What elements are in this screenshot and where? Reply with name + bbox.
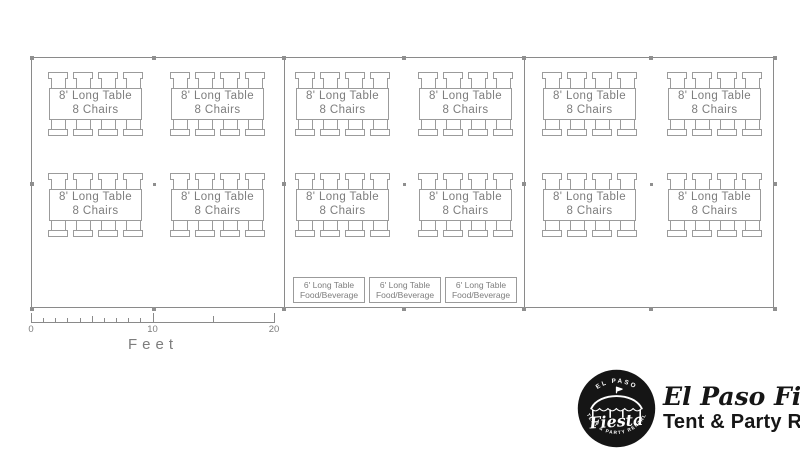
chair-back xyxy=(73,230,93,237)
pole-marker xyxy=(773,56,777,60)
chair xyxy=(320,219,340,237)
table-label-line2: 8 Chairs xyxy=(194,205,240,219)
chair xyxy=(295,219,315,237)
guest-table: 8' Long Table 8 Chairs xyxy=(170,72,265,136)
chair xyxy=(123,118,143,136)
chair-back xyxy=(320,230,340,237)
chair-back xyxy=(592,129,612,136)
chairs-row-bottom xyxy=(295,219,390,237)
pole-marker xyxy=(402,307,406,311)
chair xyxy=(98,118,118,136)
pole-marker xyxy=(773,182,777,186)
food-table-line2: Food/Beverage xyxy=(376,290,434,300)
chairs-row-bottom xyxy=(418,118,513,136)
table-label-line2: 8 Chairs xyxy=(72,104,118,118)
chair-back xyxy=(195,230,215,237)
chair-back xyxy=(73,129,93,136)
chair-back xyxy=(468,129,488,136)
pole-marker xyxy=(649,56,653,60)
table-label-line1: 8' Long Table xyxy=(429,191,502,205)
chair-back xyxy=(567,230,587,237)
chairs-row-bottom xyxy=(295,118,390,136)
chair xyxy=(418,219,438,237)
ruler-tick xyxy=(80,318,81,322)
chair-back xyxy=(617,230,637,237)
chairs-row-bottom xyxy=(170,118,265,136)
chair xyxy=(98,219,118,237)
table-label-line1: 8' Long Table xyxy=(553,90,626,104)
ruler-tick xyxy=(67,318,68,322)
chair xyxy=(418,118,438,136)
chair-back xyxy=(220,129,240,136)
chair-back xyxy=(98,230,118,237)
ruler-tick xyxy=(104,318,105,322)
chair-back xyxy=(345,129,365,136)
ruler-tick xyxy=(140,318,141,322)
guest-table-rect: 8' Long Table 8 Chairs xyxy=(419,189,512,221)
chair xyxy=(742,219,762,237)
floor-plan-canvas: 8' Long Table 8 Chairs 8' Long Table 8 C… xyxy=(0,0,800,450)
chair xyxy=(493,219,513,237)
pole-marker xyxy=(402,56,406,60)
chair xyxy=(617,118,637,136)
ruler-tick xyxy=(55,318,56,322)
chair-back xyxy=(245,129,265,136)
table-label-line2: 8 Chairs xyxy=(319,205,365,219)
guest-table: 8' Long Table 8 Chairs xyxy=(295,72,390,136)
guest-table-rect: 8' Long Table 8 Chairs xyxy=(171,88,264,120)
pole-marker xyxy=(30,182,34,186)
table-label-line1: 8' Long Table xyxy=(678,90,751,104)
chair xyxy=(667,118,687,136)
ruler-tick-label: 10 xyxy=(147,324,158,335)
chair xyxy=(692,118,712,136)
table-label-line2: 8 Chairs xyxy=(566,205,612,219)
chair xyxy=(220,118,240,136)
ruler-tick-label: 20 xyxy=(269,324,280,335)
table-label-line1: 8' Long Table xyxy=(59,90,132,104)
chair-back xyxy=(320,129,340,136)
chair-back xyxy=(667,230,687,237)
guest-table-rect: 8' Long Table 8 Chairs xyxy=(543,189,636,221)
chair xyxy=(170,219,190,237)
pole-marker xyxy=(152,56,156,60)
food-table-line1: 6' Long Table xyxy=(456,280,506,290)
guest-table: 8' Long Table 8 Chairs xyxy=(542,72,637,136)
chair-back xyxy=(170,230,190,237)
guest-table: 8' Long Table 8 Chairs xyxy=(418,72,513,136)
ruler-tick-label: 0 xyxy=(28,324,33,335)
chair-back xyxy=(542,230,562,237)
chair xyxy=(123,219,143,237)
guest-table-rect: 8' Long Table 8 Chairs xyxy=(49,189,142,221)
chair xyxy=(443,118,463,136)
chair xyxy=(493,118,513,136)
table-label-line2: 8 Chairs xyxy=(691,104,737,118)
chair xyxy=(195,219,215,237)
pole-marker xyxy=(522,56,526,60)
food-table-line1: 6' Long Table xyxy=(380,280,430,290)
chair xyxy=(592,118,612,136)
chair xyxy=(370,118,390,136)
pole-marker xyxy=(650,183,653,186)
chair-back xyxy=(123,129,143,136)
chair xyxy=(592,219,612,237)
chair xyxy=(717,118,737,136)
table-label-line2: 8 Chairs xyxy=(442,104,488,118)
guest-table: 8' Long Table 8 Chairs xyxy=(667,173,762,237)
chair-back xyxy=(443,129,463,136)
chair-back xyxy=(123,230,143,237)
chair-back xyxy=(48,230,68,237)
pole-marker xyxy=(30,56,34,60)
chair-back xyxy=(493,230,513,237)
table-label-line1: 8' Long Table xyxy=(59,191,132,205)
pole-marker xyxy=(282,307,286,311)
food-table-line2: Food/Beverage xyxy=(452,290,510,300)
chair-back xyxy=(418,230,438,237)
chairs-row-bottom xyxy=(542,118,637,136)
chair xyxy=(195,118,215,136)
chair-back xyxy=(345,230,365,237)
chair xyxy=(370,219,390,237)
chairs-row-bottom xyxy=(48,118,143,136)
chair-back xyxy=(245,230,265,237)
tent-outline: 8' Long Table 8 Chairs 8' Long Table 8 C… xyxy=(31,57,774,308)
chair-back xyxy=(370,230,390,237)
ruler-tick xyxy=(274,313,275,322)
food-table-line2: Food/Beverage xyxy=(300,290,358,300)
chair-back xyxy=(567,129,587,136)
logo-wordmark: El Paso Fiesta Tent & Party Rental xyxy=(663,384,800,432)
chair xyxy=(345,219,365,237)
guest-table: 8' Long Table 8 Chairs xyxy=(48,173,143,237)
table-label-line1: 8' Long Table xyxy=(181,90,254,104)
chair xyxy=(468,118,488,136)
chair-back xyxy=(717,230,737,237)
chairs-row-bottom xyxy=(667,118,762,136)
chair xyxy=(170,118,190,136)
guest-table-rect: 8' Long Table 8 Chairs xyxy=(668,88,761,120)
chairs-row-bottom xyxy=(170,219,265,237)
chair-back xyxy=(295,129,315,136)
scale-unit-label: Feet xyxy=(31,336,275,353)
brand-name: El Paso Fiesta xyxy=(663,384,800,410)
chair-back xyxy=(617,129,637,136)
chair xyxy=(692,219,712,237)
chair xyxy=(320,118,340,136)
chair-back xyxy=(170,129,190,136)
table-label-line1: 8' Long Table xyxy=(306,191,379,205)
chair-back xyxy=(742,129,762,136)
chair xyxy=(667,219,687,237)
brand-tagline: Tent & Party Rental xyxy=(663,411,800,433)
ruler-baseline xyxy=(31,322,275,323)
chair xyxy=(345,118,365,136)
chair-back xyxy=(443,230,463,237)
pole-marker xyxy=(649,307,653,311)
food-table-line1: 6' Long Table xyxy=(304,280,354,290)
table-label-line2: 8 Chairs xyxy=(691,205,737,219)
chair xyxy=(48,118,68,136)
guest-table: 8' Long Table 8 Chairs xyxy=(667,72,762,136)
chair xyxy=(73,219,93,237)
guest-table-rect: 8' Long Table 8 Chairs xyxy=(49,88,142,120)
ruler-tick xyxy=(128,318,129,322)
table-label-line2: 8 Chairs xyxy=(194,104,240,118)
pole-marker xyxy=(773,307,777,311)
scale-ruler: 01020 Feet xyxy=(31,309,281,359)
ruler-tick xyxy=(213,316,214,322)
chair-back xyxy=(220,230,240,237)
chair-back xyxy=(742,230,762,237)
chair-back xyxy=(468,230,488,237)
ruler-tick xyxy=(43,318,44,322)
food-table: 6' Long Table Food/Beverage xyxy=(445,277,517,303)
chair-back xyxy=(295,230,315,237)
chairs-row-bottom xyxy=(542,219,637,237)
ruler-tick xyxy=(92,316,93,322)
chair xyxy=(73,118,93,136)
guest-table-rect: 8' Long Table 8 Chairs xyxy=(171,189,264,221)
chairs-row-bottom xyxy=(667,219,762,237)
table-label-line1: 8' Long Table xyxy=(678,191,751,205)
chair-back xyxy=(370,129,390,136)
chair xyxy=(443,219,463,237)
chairs-row-bottom xyxy=(48,219,143,237)
table-label-line2: 8 Chairs xyxy=(72,205,118,219)
guest-table: 8' Long Table 8 Chairs xyxy=(542,173,637,237)
chair xyxy=(567,219,587,237)
chair-back xyxy=(542,129,562,136)
chair xyxy=(468,219,488,237)
guest-table-rect: 8' Long Table 8 Chairs xyxy=(296,88,389,120)
chair xyxy=(567,118,587,136)
chair-back xyxy=(195,129,215,136)
chair-back xyxy=(667,129,687,136)
chair-back xyxy=(592,230,612,237)
chair xyxy=(48,219,68,237)
brand-logo: EL PASO Fiesta TENT & PARTY RENTAL El Pa… xyxy=(577,369,800,448)
guest-table-rect: 8' Long Table 8 Chairs xyxy=(668,189,761,221)
chair-back xyxy=(692,129,712,136)
logo-badge-icon: EL PASO Fiesta TENT & PARTY RENTAL xyxy=(577,369,656,448)
pole-marker xyxy=(522,182,526,186)
chair xyxy=(245,219,265,237)
chairs-row-bottom xyxy=(418,219,513,237)
chair-back xyxy=(717,129,737,136)
pole-marker xyxy=(282,56,286,60)
pole-marker xyxy=(282,182,286,186)
pole-marker xyxy=(403,183,406,186)
food-table: 6' Long Table Food/Beverage xyxy=(293,277,365,303)
table-label-line1: 8' Long Table xyxy=(306,90,379,104)
chair xyxy=(295,118,315,136)
guest-table-rect: 8' Long Table 8 Chairs xyxy=(296,189,389,221)
chair xyxy=(717,219,737,237)
ruler-tick xyxy=(153,313,154,322)
pole-marker xyxy=(153,183,156,186)
table-label-line2: 8 Chairs xyxy=(442,205,488,219)
ruler-tick xyxy=(31,313,32,322)
chair-back xyxy=(48,129,68,136)
food-table: 6' Long Table Food/Beverage xyxy=(369,277,441,303)
guest-table: 8' Long Table 8 Chairs xyxy=(170,173,265,237)
table-label-line1: 8' Long Table xyxy=(181,191,254,205)
pole-marker xyxy=(522,307,526,311)
ruler-tick xyxy=(116,318,117,322)
guest-table: 8' Long Table 8 Chairs xyxy=(418,173,513,237)
table-label-line1: 8' Long Table xyxy=(429,90,502,104)
table-label-line1: 8' Long Table xyxy=(553,191,626,205)
guest-table: 8' Long Table 8 Chairs xyxy=(295,173,390,237)
chair-back xyxy=(493,129,513,136)
guest-table-rect: 8' Long Table 8 Chairs xyxy=(419,88,512,120)
chair-back xyxy=(418,129,438,136)
guest-table-rect: 8' Long Table 8 Chairs xyxy=(543,88,636,120)
chair xyxy=(220,219,240,237)
chair xyxy=(542,219,562,237)
chair xyxy=(542,118,562,136)
chair-back xyxy=(692,230,712,237)
chair-back xyxy=(98,129,118,136)
chair xyxy=(245,118,265,136)
table-label-line2: 8 Chairs xyxy=(319,104,365,118)
chair xyxy=(742,118,762,136)
table-label-line2: 8 Chairs xyxy=(566,104,612,118)
chair xyxy=(617,219,637,237)
guest-table: 8' Long Table 8 Chairs xyxy=(48,72,143,136)
